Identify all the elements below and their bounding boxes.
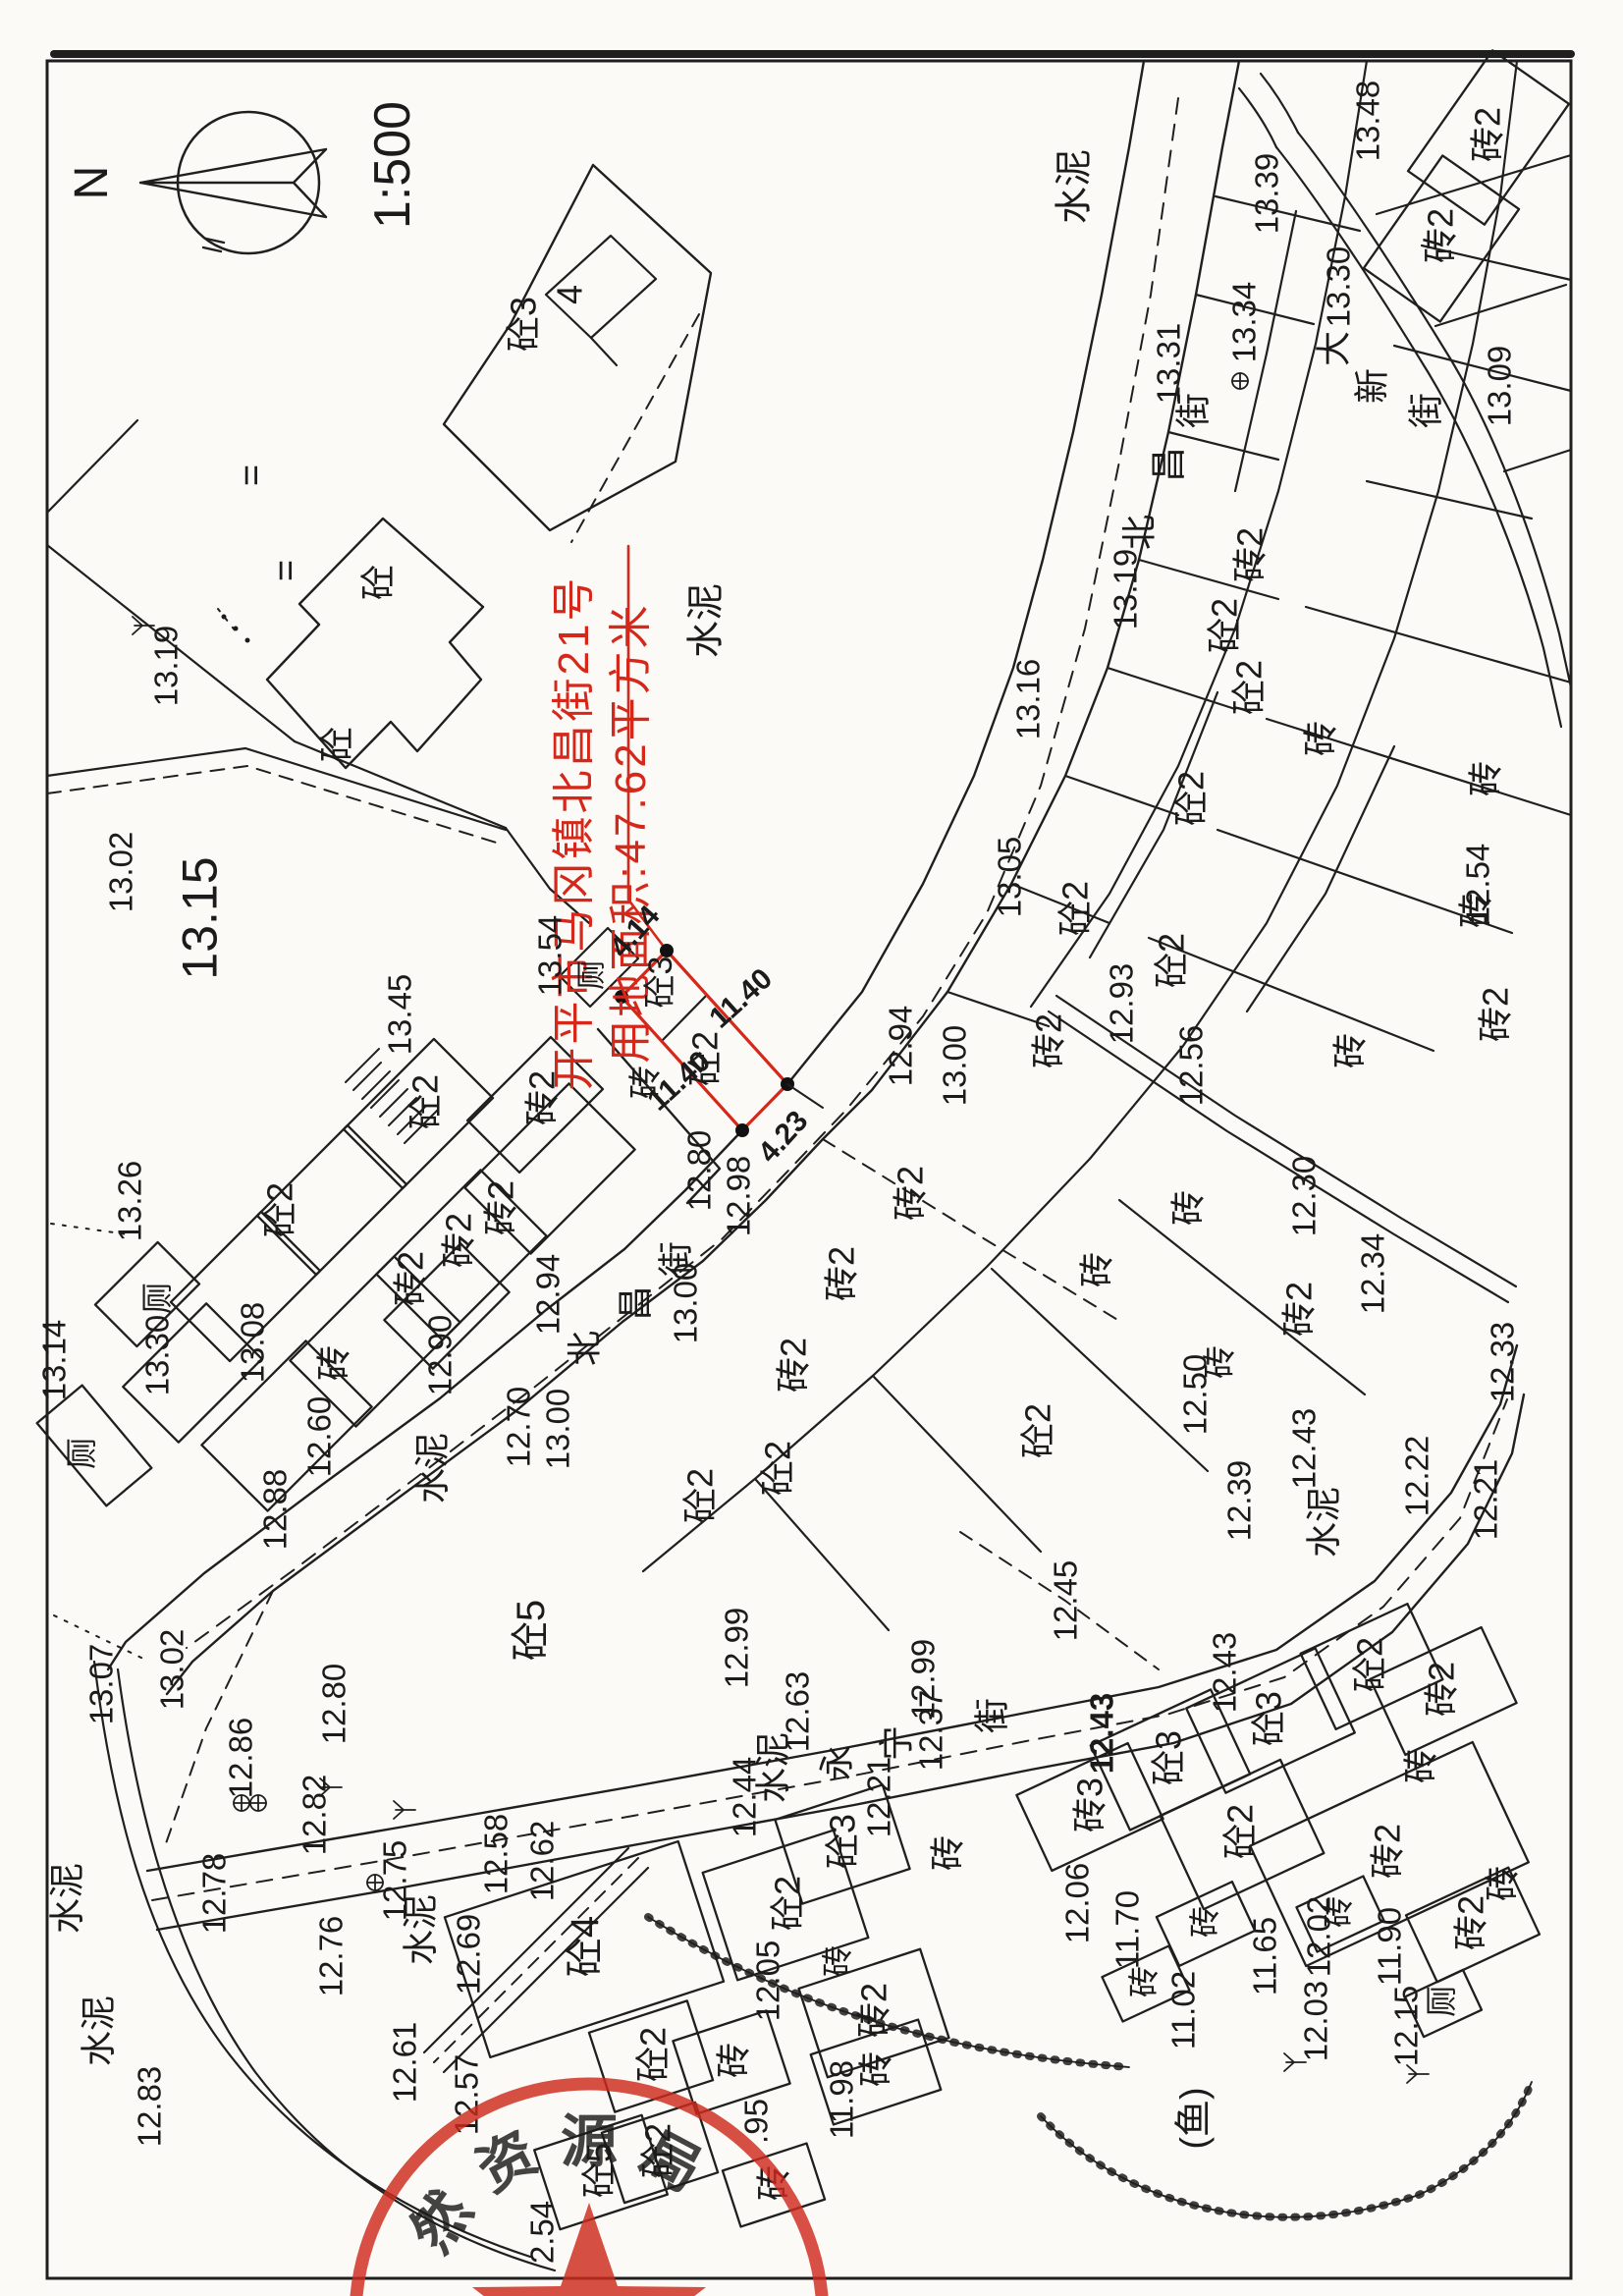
map-label: 砼2 (758, 1441, 798, 1496)
map-label: 2.54 (524, 2201, 561, 2264)
map-label: 13.00 (937, 1025, 973, 1107)
map-label: 砖2 (1368, 1824, 1408, 1879)
map-label: 12.05 (750, 1941, 786, 2022)
corner-tick (787, 1084, 823, 1108)
map-label: 砼2 (1220, 1804, 1261, 1859)
linework-path (1419, 2082, 1532, 2195)
map-label: 砼2 (406, 1074, 446, 1129)
map-label: 12.70 (501, 1387, 537, 1468)
map-label: 12.33 (1485, 1322, 1521, 1403)
map-label: 12.80 (316, 1664, 352, 1745)
linework-path (1247, 746, 1394, 1011)
map-label: 砖2 (1468, 107, 1508, 162)
map-label: 13.00 (668, 1263, 704, 1344)
map-label: 12.62 (524, 1821, 561, 1902)
map-label: 12.58 (478, 1814, 514, 1895)
linework-path (371, 1080, 399, 1108)
map-label: 砖2 (1451, 1895, 1491, 1950)
map-label: 水泥 (753, 1732, 793, 1803)
map-label: 大 (1314, 331, 1354, 366)
north-label: N (66, 166, 118, 200)
map-label: 12.78 (196, 1853, 233, 1935)
map-label: 13.07 (83, 1644, 120, 1725)
map-label: 13.34 (1226, 282, 1263, 363)
map-label: 砖 (1301, 721, 1341, 756)
map-label: 12.45 (1048, 1560, 1084, 1642)
map-label: 12.34 (1355, 1233, 1391, 1315)
map-label: 12.99 (719, 1608, 755, 1689)
map-label: 水泥 (1054, 149, 1095, 224)
linework-path (362, 1071, 390, 1099)
linework-path (1306, 607, 1571, 683)
map-label: 砼2 (1205, 598, 1245, 653)
map-label: 水泥 (79, 1995, 119, 2066)
dot-mark (234, 627, 239, 631)
linework-path (1407, 2065, 1429, 2083)
map-label: 12.80 (681, 1130, 718, 1212)
linework-path (1261, 74, 1298, 133)
map-label: 13.54 (532, 915, 568, 997)
map-label: 砼2 (680, 1468, 721, 1523)
map-label: 12.69 (451, 1914, 487, 1995)
map-label: 12.90 (422, 1315, 459, 1396)
map-label: 街 (1173, 393, 1214, 428)
map-label: 砼 (358, 565, 399, 600)
tree-icon (394, 1801, 415, 1819)
map-label: 砖 (1466, 761, 1506, 796)
map-label: 12.98 (721, 1156, 757, 1237)
map-label: 砖3 (1070, 1777, 1110, 1832)
tree-icon (1407, 2065, 1429, 2083)
map-label: 水泥 (412, 1433, 453, 1503)
linework-path (756, 1480, 889, 1630)
map-label: 11.90 (1372, 1907, 1408, 1986)
map-label: 12.94 (530, 1254, 567, 1336)
map-label: 砖2 (391, 1251, 431, 1306)
map-label: 13.26 (112, 1161, 148, 1242)
map-label: = (265, 560, 306, 581)
map-label: 砖 (1321, 1896, 1356, 1928)
map-label: 砖 (314, 1345, 354, 1381)
map-label: 13.16 (1010, 659, 1047, 740)
map-label: 11.02 (1165, 1971, 1202, 2050)
map-label: 13.02 (103, 832, 139, 913)
map-label: 厕 (64, 1438, 99, 1469)
annotation-line1: 开平市马冈镇北昌街21号 (550, 575, 598, 1091)
map-label: 砖2 (854, 1983, 894, 2038)
map-label: 砼3 (504, 297, 544, 352)
map-label: 街 (1406, 393, 1446, 428)
map-label: 12.61 (387, 2022, 423, 2104)
map-label: 12.94 (883, 1006, 919, 1087)
map-label: 13.02 (154, 1629, 190, 1711)
map-label: 12.76 (313, 1916, 350, 1997)
linework-path (380, 1089, 407, 1117)
map-label: 13.48 (1350, 81, 1386, 162)
map-label: 13.05 (992, 837, 1028, 918)
linework-path (1367, 481, 1532, 519)
map-label: 13.30 (139, 1315, 176, 1396)
map-label: 砖2 (822, 1246, 862, 1301)
linework-path (47, 420, 137, 513)
map-label: 砼2 (1350, 1637, 1390, 1692)
map-label: 砖2 (522, 1070, 563, 1125)
map-label: 昌 (616, 1285, 656, 1321)
cadastral-map: N 1:500 开平市马冈镇北昌街21号 用地面积:47.62平方米 水泥13.… (0, 0, 1623, 2296)
map-label: 13.09 (1482, 346, 1518, 427)
map-label: 砼4 (564, 1916, 607, 1977)
map-label: 厕 (576, 960, 609, 990)
map-label: 砖2 (891, 1166, 931, 1221)
map-label: 12.37 (913, 1690, 949, 1772)
map-label: 砼2 (1055, 881, 1096, 936)
linework-path (571, 314, 699, 542)
map-label: 砼2 (633, 2027, 674, 2082)
map-label: 砼5 (510, 1600, 553, 1661)
map-label: 厕 (1424, 1986, 1459, 2017)
map-label: 11.70 (1109, 1890, 1146, 1969)
map-label: 砼2 (1229, 660, 1270, 715)
map-label: 砖 (820, 1945, 855, 1977)
map-label: 砖2 (1422, 1662, 1462, 1717)
map-label: 12.39 (1221, 1460, 1258, 1542)
map-label: 11.98 (824, 2060, 860, 2139)
survey-marker-icon (1232, 373, 1248, 389)
map-frame (47, 54, 1571, 2278)
linework-path (267, 519, 483, 768)
linework-path (874, 1377, 1041, 1552)
map-label: 砼2 (260, 1182, 300, 1237)
map-label: 13.00 (540, 1389, 576, 1470)
map-label: 砼2 (768, 1876, 808, 1931)
map-label: 砖2 (1029, 1013, 1069, 1068)
map-label: 12.50 (1177, 1354, 1214, 1436)
map-label: 12.54 (1460, 844, 1496, 925)
map-label: 12.82 (297, 1775, 333, 1856)
map-label: 4 (550, 285, 590, 304)
map-label: 砖2 (439, 1213, 479, 1268)
map-label: 永 (817, 1745, 857, 1780)
map-label: 街 (972, 1698, 1012, 1733)
map-label: 砼2 (1171, 771, 1212, 826)
map-label: 12.03 (1298, 1981, 1334, 2062)
map-label: 砖 (1330, 1033, 1371, 1068)
map-label: 13.30 (1321, 246, 1357, 328)
map-label: 砖 (1077, 1252, 1117, 1287)
map-label: 砖 (1401, 1748, 1441, 1783)
linework-path (47, 748, 506, 830)
map-label: 13.15 (173, 856, 228, 979)
linework-path (823, 1139, 1119, 1321)
map-label: 12.21 (1468, 1459, 1504, 1541)
linework-path (1049, 1011, 1508, 1302)
linework-path (353, 1063, 381, 1090)
map-label: 新 (1352, 368, 1392, 404)
map-label: 砖 (1126, 1966, 1162, 1997)
map-label: 水泥 (685, 583, 727, 658)
map-label: 砖 (714, 2043, 754, 2078)
map-label: 厕 (139, 1283, 175, 1314)
map-label: 砼2 (1018, 1403, 1058, 1458)
linework-path (1041, 2116, 1419, 2217)
map-label: 11.65 (1247, 1917, 1283, 1995)
map-label: 12.22 (1399, 1436, 1435, 1517)
map-label: 水泥 (47, 1863, 87, 1934)
map-label: 12.43 (1084, 1693, 1120, 1775)
map-label: 砼3 (1149, 1730, 1189, 1785)
linework-path (394, 1801, 415, 1819)
map-label: 砖2 (1421, 208, 1461, 263)
map-label: 12.88 (257, 1469, 294, 1551)
map-label: 12.43 (1286, 1408, 1323, 1490)
map-label: 砼3 (823, 1814, 863, 1869)
map-label: 12.86 (223, 1718, 259, 1799)
map-label: 砼 (317, 727, 357, 762)
north-compass: N (66, 112, 326, 253)
map-label: 12.30 (1286, 1156, 1323, 1237)
map-label: 13.31 (1151, 323, 1187, 405)
map-label: 北 (565, 1331, 605, 1366)
map-label: 北 (1119, 515, 1160, 550)
map-label: 砖2 (481, 1180, 521, 1235)
map-label: 12.93 (1104, 963, 1140, 1045)
map-label: 砼3 (642, 957, 679, 1009)
map-label: 砖 (856, 2051, 896, 2087)
linework-path (1239, 88, 1276, 147)
map-label: 水泥 (401, 1894, 441, 1965)
dot-mark (245, 638, 250, 643)
map-label: 12.56 (1173, 1025, 1210, 1107)
map-label: 12.06 (1059, 1863, 1096, 1944)
map-label: 12.15 (1388, 1986, 1425, 2067)
map-label: 12.21 (861, 1757, 897, 1838)
map-label: 13.14 (36, 1320, 73, 1401)
map-label: 砖2 (1476, 987, 1516, 1042)
map-label: 13.08 (235, 1302, 271, 1384)
map-label: = (231, 465, 272, 486)
map-label: 12.83 (132, 2066, 168, 2148)
linework-path (1216, 196, 1360, 231)
map-label: 砖2 (774, 1338, 814, 1393)
map-label: (鱼) (1173, 2087, 1215, 2149)
map-label: 砖2 (1230, 527, 1271, 582)
linework-path (444, 165, 711, 530)
linework-path (108, 1130, 742, 1669)
north-arrow-icon (140, 149, 326, 251)
linework-path (218, 609, 240, 636)
map-label: 12.43 (1207, 1632, 1243, 1714)
map-label: 13.19 (1108, 549, 1144, 630)
stamp-character: 然 (399, 2180, 484, 2264)
map-label: 砖 (1187, 1906, 1222, 1938)
map-label: 砖 (928, 1835, 968, 1871)
map-label: 砖 (1168, 1190, 1209, 1226)
map-label: 砼2 (1152, 933, 1192, 988)
linework-path (591, 338, 617, 365)
cadastral-map-page: N 1:500 开平市马冈镇北昌街21号 用地面积:47.62平方米 水泥13.… (0, 0, 1623, 2296)
dot-mark (222, 615, 227, 620)
scale-text: 1:500 (364, 101, 421, 229)
linework-path (1504, 450, 1571, 471)
linework-path (1419, 2082, 1532, 2195)
map-label: 昌 (1149, 447, 1189, 482)
linework-path (1377, 155, 1571, 214)
map-label: 13.39 (1249, 153, 1285, 235)
map-label: 砼3 (1249, 1691, 1289, 1746)
linework-path (1119, 1200, 1365, 1394)
map-label: 12.60 (301, 1396, 338, 1478)
map-label: 宁 (877, 1725, 917, 1761)
map-label: 13.19 (148, 626, 185, 707)
linework-path (1435, 285, 1566, 326)
map-label: 13.45 (382, 974, 418, 1056)
map-label: 水泥 (1304, 1487, 1344, 1558)
stamp-character: 源 (561, 2109, 618, 2173)
parcel-dimension-label: 11.40 (703, 962, 779, 1035)
map-label: 砖2 (1279, 1282, 1320, 1337)
